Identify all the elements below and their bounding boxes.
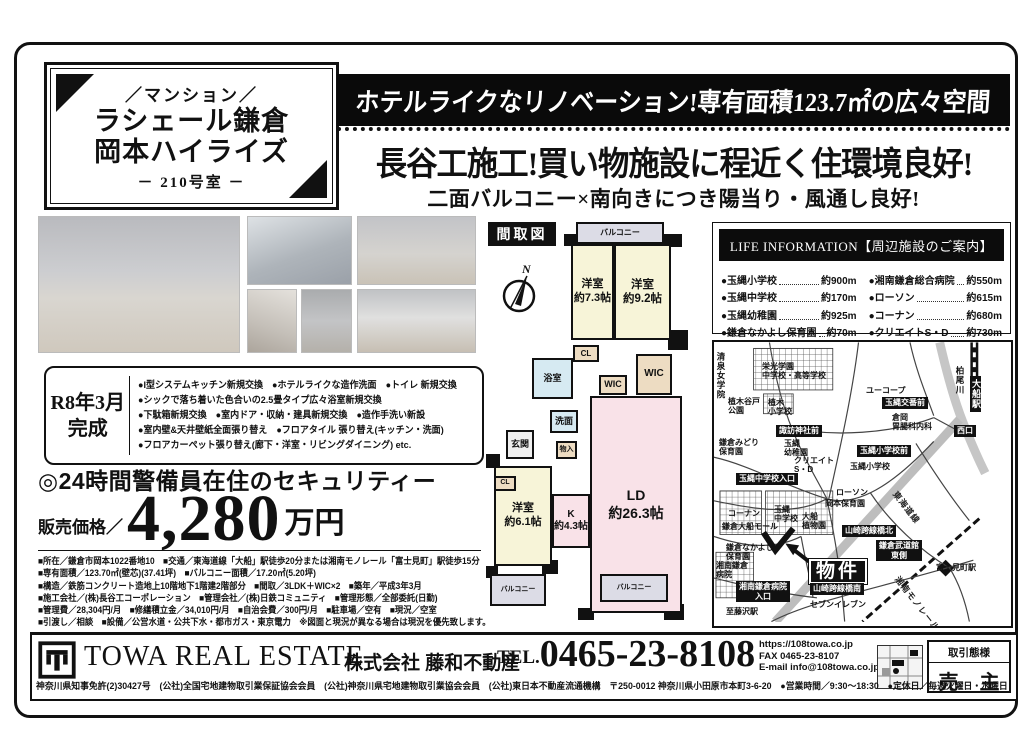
life-info-row: ●クリエイトS・D約730m bbox=[869, 324, 1002, 339]
map-label: 大船駅 bbox=[970, 376, 981, 412]
map-label: 山崎跨線橋南 bbox=[810, 583, 864, 595]
map-label: 鎌倉みどり 保育園 bbox=[719, 438, 759, 456]
photo-room-doors bbox=[357, 216, 476, 285]
renovation-item: ●シックで落ち着いた色合いの2.5畳タイプ広々浴室新規交換 bbox=[138, 393, 457, 408]
map-label: 植木 小学校 bbox=[768, 398, 792, 416]
floorplan-room: K 約4.3帖 bbox=[552, 494, 590, 548]
photo-living-room bbox=[38, 216, 240, 353]
flyer-page: ／マンション／ ラシェール鎌倉 岡本ハイライズ － 210号室 － ホテルライク… bbox=[0, 0, 1032, 729]
renovation-item: ●I型システムキッチン新規交換 ●ホテルライクな造作洗面 ●トイレ 新規交換 bbox=[138, 378, 457, 393]
completion-date-line2: 完成 bbox=[68, 416, 108, 442]
life-information-box: LIFE INFORMATION【周辺施設のご案内】 ●玉縄小学校約900m●玉… bbox=[712, 222, 1011, 334]
photo-bathroom bbox=[301, 289, 352, 353]
email-address: E-mail info@108towa.co.jp bbox=[759, 662, 879, 674]
map-label: 鎌倉なかよし 保育園 bbox=[726, 543, 774, 561]
map-label: 鎌倉大船モール bbox=[722, 522, 778, 531]
facility-name: ●玉縄中学校 bbox=[721, 289, 777, 304]
floorplan-room: WIC bbox=[636, 354, 672, 395]
map-label: 湘南鎌倉 病院 bbox=[716, 561, 748, 579]
detail-line: ■施工会社／(株)長谷工コーポレーション ■管理会社／(株)日鉄コミュニティ ■… bbox=[38, 592, 453, 604]
company-name-en: TOWA REAL ESTATE bbox=[84, 641, 364, 673]
floorplan-room: 浴室 bbox=[532, 358, 573, 399]
dotted-leader bbox=[779, 319, 819, 320]
facility-name: ●玉縄幼稚園 bbox=[721, 307, 777, 322]
floorplan-room: 玄関 bbox=[506, 430, 534, 459]
facility-name: ●鎌倉なかよし保育園 bbox=[721, 324, 817, 339]
floorplan-room: バルコニー bbox=[576, 222, 664, 244]
map-label: 栄光学園 中学校・高等学校 bbox=[762, 362, 826, 380]
facility-distance: 約900m bbox=[821, 272, 857, 287]
price-amount: 4,280 bbox=[127, 491, 281, 547]
floorplan-pillar bbox=[668, 330, 688, 350]
facility-name: ●クリエイトS・D bbox=[869, 324, 949, 339]
dotted-leader bbox=[951, 336, 965, 337]
map-label: クリエイト S・D bbox=[794, 456, 834, 474]
map-label: 玉縄小学校前 bbox=[857, 445, 911, 457]
floorplan-room: 物入 bbox=[556, 441, 577, 459]
floorplan-room: 洋室 約7.3帖 bbox=[571, 244, 614, 340]
property-title-box: ／マンション／ ラシェール鎌倉 岡本ハイライズ － 210号室 － bbox=[44, 62, 339, 210]
map-label: 山崎跨線橋北 bbox=[842, 525, 896, 537]
floorplan-room: 洋室 約9.2帖 bbox=[614, 244, 671, 340]
floorplan-room: CL bbox=[494, 476, 516, 491]
compass-north-label: N bbox=[522, 262, 531, 277]
renovation-item: ●下駄箱新規交換 ●室内ドア・収納・建具新規交換 ●造作手洗い新設 bbox=[138, 408, 457, 423]
renovation-item: ●室内壁&天井壁紙全面張り替え ●フロアタイル 張り替え(キッチン・洗面) bbox=[138, 423, 457, 438]
dotted-leader bbox=[779, 301, 819, 302]
detail-line: ■所在／鎌倉市岡本1022番地10 ■交通／東海道線「大船」駅徒歩20分または湘… bbox=[38, 555, 453, 567]
life-info-row: ●湘南鎌倉総合病院約550m bbox=[869, 272, 1002, 287]
map-label: コーナン bbox=[728, 509, 760, 518]
property-details-list: ■所在／鎌倉市岡本1022番地10 ■交通／東海道線「大船」駅徒歩20分または湘… bbox=[38, 555, 484, 629]
life-information-title: LIFE INFORMATION【周辺施設のご案内】 bbox=[719, 229, 1004, 261]
life-info-row: ●玉縄小学校約900m bbox=[721, 272, 857, 287]
map-label: 物件 bbox=[808, 558, 868, 585]
detail-line: ■専有面積／123.70㎡(壁芯)(37.41坪) ■バルコニー面積／17.20… bbox=[38, 567, 453, 579]
facility-distance: 約170m bbox=[821, 289, 857, 304]
map-label: 湘南モノレール bbox=[893, 575, 941, 628]
map-label: 東海道線 bbox=[891, 490, 921, 525]
facility-name: ●ローソン bbox=[869, 289, 915, 304]
facility-distance: 約550m bbox=[966, 272, 1002, 287]
price-row: 販売価格／ 4,280 万円 bbox=[38, 487, 480, 547]
life-info-row: ●コーナン約680m bbox=[869, 307, 1002, 322]
map-label: 富士見町駅 bbox=[936, 563, 976, 572]
facility-name: ●玉縄小学校 bbox=[721, 272, 777, 287]
map-label: 倉岡 胃腸科内科 bbox=[892, 413, 932, 431]
floorplan-room: 洗面 bbox=[550, 410, 578, 433]
compass-icon: N bbox=[498, 262, 542, 318]
facility-distance: 約615m bbox=[966, 289, 1002, 304]
property-name-line1: ラシェール鎌倉 bbox=[94, 106, 289, 137]
headline-main-text: 長谷工施工!買い物施設に程近く住環境良好! bbox=[375, 137, 972, 185]
headline-sub: 二面バルコニー×南向きにつき陽当り・風通し良好! bbox=[337, 183, 1010, 213]
corner-triangle-decoration bbox=[289, 160, 327, 198]
life-info-row: ●玉縄中学校約170m bbox=[721, 289, 857, 304]
photo-washbasin bbox=[247, 289, 297, 353]
renovation-box: R8年3月 完成 ●I型システムキッチン新規交換 ●ホテルライクな造作洗面 ●ト… bbox=[44, 366, 484, 465]
map-label: ユーコープ bbox=[866, 386, 906, 395]
life-info-row: ●鎌倉なかよし保育園約70m bbox=[721, 324, 857, 339]
map-labels-layer: 清泉女学院栄光学園 中学校・高等学校植木谷戸 公園植木 小学校ユーコープ玉縄交番… bbox=[714, 342, 1011, 626]
life-info-column-left: ●玉縄小学校約900m●玉縄中学校約170m●玉縄幼稚園約925m●鎌倉なかよし… bbox=[721, 269, 857, 342]
facility-distance: 約70m bbox=[827, 324, 857, 339]
dotted-leader bbox=[819, 336, 825, 337]
corner-triangle-decoration bbox=[56, 74, 94, 112]
renovation-list: ●I型システムキッチン新規交換 ●ホテルライクな造作洗面 ●トイレ 新規交換●シ… bbox=[130, 368, 482, 463]
map-label: 玉縄 幼稚園 bbox=[784, 439, 808, 457]
floorplan-room: バルコニー bbox=[600, 574, 668, 602]
photo-bedroom-windows bbox=[357, 289, 476, 353]
detail-line: ■構造／鉄筋コンクリート造地上10階地下1階建2階部分 ■間取／3LDK＋WIC… bbox=[38, 580, 453, 592]
map-label: 西口 bbox=[954, 425, 976, 437]
tel-label: TEL. bbox=[497, 647, 540, 674]
map-label: 柏尾川 bbox=[955, 366, 964, 395]
dotted-divider bbox=[337, 127, 1010, 131]
transaction-type-title: 取引態様 bbox=[929, 642, 1009, 663]
company-name-jp: 株式会社 藤和不動産 bbox=[344, 648, 520, 675]
map-label: 玉縄小学校 bbox=[850, 462, 890, 471]
floorplan-title: 間取図 bbox=[488, 222, 556, 246]
detail-line: ■管理費／28,304円/月 ■修繕積立金／34,010円/月 ■自治会費／30… bbox=[38, 604, 453, 616]
map-label: 鎌倉武道館 東側 bbox=[876, 540, 922, 561]
dotted-leader bbox=[917, 301, 965, 302]
map-label: 玉縄 中学校 bbox=[774, 505, 798, 523]
price-underline bbox=[38, 550, 481, 551]
facility-distance: 約925m bbox=[821, 307, 857, 322]
life-info-column-right: ●湘南鎌倉総合病院約550m●ローソン約615m●コーナン約680m●クリエイト… bbox=[869, 269, 1002, 342]
tel-number: 0465-23-8108 bbox=[540, 634, 755, 674]
area-map: 清泉女学院栄光学園 中学校・高等学校植木谷戸 公園植木 小学校ユーコープ玉縄交番… bbox=[712, 340, 1013, 628]
map-label: 大船 植物園 bbox=[802, 512, 826, 530]
website-url: https://108towa.co.jp bbox=[759, 639, 879, 651]
price-label: 販売価格／ bbox=[38, 513, 123, 547]
map-label: ローソン bbox=[836, 488, 868, 497]
map-label: 清泉女学院 bbox=[716, 352, 725, 400]
contact-block: https://108towa.co.jp FAX 0465-23-8107 E… bbox=[759, 639, 879, 674]
map-label: 玉縄中学校入口 bbox=[736, 473, 798, 485]
photo-kitchen-counter bbox=[247, 216, 352, 285]
facility-name: ●湘南鎌倉総合病院 bbox=[869, 272, 955, 287]
dotted-leader bbox=[957, 284, 965, 285]
floorplan-room: バルコニー bbox=[490, 574, 546, 606]
license-line: 神奈川県知事免許(2)30427号 (公社)全国宅地建物取引業保証協会会員 (公… bbox=[36, 679, 989, 692]
headline-banner: ホテルライクなリノベーション!専有面積123.7㎡の広々空間 bbox=[337, 74, 1010, 126]
map-label: 岡本保育園 bbox=[825, 499, 865, 508]
property-category: ／マンション／ bbox=[125, 81, 258, 106]
dotted-leader bbox=[917, 319, 965, 320]
map-label: 湘南鎌倉病院 入口 bbox=[736, 581, 790, 602]
map-label: 諏訪神社前 bbox=[776, 425, 822, 437]
property-room-number: － 210号室 － bbox=[137, 171, 245, 192]
property-name-line2: 岡本ハイライズ bbox=[94, 137, 289, 168]
map-label: 至藤沢駅 bbox=[726, 607, 758, 616]
facility-distance: 約680m bbox=[966, 307, 1002, 322]
life-info-row: ●玉縄幼稚園約925m bbox=[721, 307, 857, 322]
map-label: 玉縄交番前 bbox=[882, 397, 928, 409]
life-info-row: ●ローソン約615m bbox=[869, 289, 1002, 304]
detail-line: ■引渡し／相談 ■設備／公営水道・公共下水・都市ガス・東京電力 ※図面と現況が異… bbox=[38, 616, 453, 628]
facility-name: ●コーナン bbox=[869, 307, 915, 322]
renovation-item: ●フロアカーペット張り替え(廊下・洋室・リビングダイニング) etc. bbox=[138, 438, 457, 453]
phone-row: TEL. 0465-23-8108 bbox=[497, 634, 755, 674]
headline-main: 長谷工施工!買い物施設に程近く住環境良好! bbox=[337, 137, 1010, 185]
dotted-leader bbox=[779, 284, 819, 285]
fax-number: FAX 0465-23-8107 bbox=[759, 651, 879, 663]
completion-date: R8年3月 完成 bbox=[46, 368, 129, 463]
facility-distance: 約730m bbox=[966, 324, 1002, 339]
map-label: セブンイレブン bbox=[810, 600, 866, 609]
completion-date-line1: R8年3月 bbox=[51, 390, 125, 416]
towa-logo-icon bbox=[38, 641, 76, 679]
headline-banner-text: ホテルライクなリノベーション!専有面積123.7㎡の広々空間 bbox=[355, 82, 992, 119]
map-label: 植木谷戸 公園 bbox=[728, 397, 760, 415]
floorplan-room: WIC bbox=[599, 375, 627, 395]
floorplan-room: CL bbox=[573, 345, 599, 362]
price-unit: 万円 bbox=[285, 498, 345, 547]
